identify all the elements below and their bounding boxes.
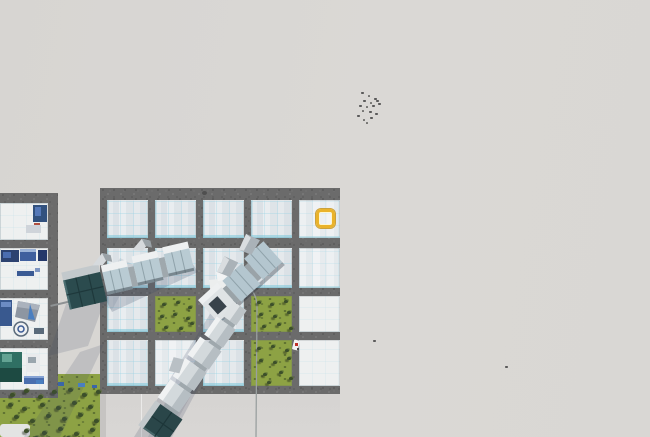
tile-r3c4[interactable] [251,296,292,332]
road-pebble [202,191,207,195]
tile-r4c5[interactable] [299,340,340,386]
left-tile-4[interactable] [0,348,48,390]
left-factory-grid [0,193,58,398]
tile-r2c3[interactable] [203,248,244,288]
tile-r4c1[interactable] [107,340,148,386]
tile-r2c2[interactable] [155,248,196,288]
tile-r1c4[interactable] [251,200,292,238]
tile-r4c2[interactable] [155,340,196,386]
machine-cluster-blue [0,248,48,290]
main-factory-grid [100,188,340,394]
tile-r2c5[interactable] [299,248,340,288]
apron-road-stub [100,394,106,437]
tile-r3c2[interactable] [155,296,196,332]
machine-teal-and-robot [0,348,48,390]
tile-r3c1[interactable] [107,296,148,332]
tile-r1c3[interactable] [203,200,244,238]
machine-small-blue [0,203,48,240]
tile-r2c1[interactable] [107,248,148,288]
left-tile-1[interactable] [0,203,48,240]
tile-r3c5[interactable] [299,296,340,332]
grass-field-extension [58,374,103,388]
left-tile-3[interactable] [0,298,48,340]
small-cargo-item[interactable] [293,340,301,352]
machine-tarp-and-drum [0,298,48,340]
tile-r1c2[interactable] [155,200,196,238]
concrete-apron [100,394,340,437]
tile-r4c3[interactable] [203,340,244,386]
tile-r3c3[interactable] [203,296,244,332]
tile-r2c4[interactable] [251,248,292,288]
apron-curb-line [141,394,142,437]
white-patch [0,424,30,437]
tile-r4c4[interactable] [251,340,292,386]
left-tile-2[interactable] [0,248,48,290]
tile-r1c1[interactable] [107,200,148,238]
game-viewport [0,0,650,437]
tile-selection-highlight [316,209,335,228]
